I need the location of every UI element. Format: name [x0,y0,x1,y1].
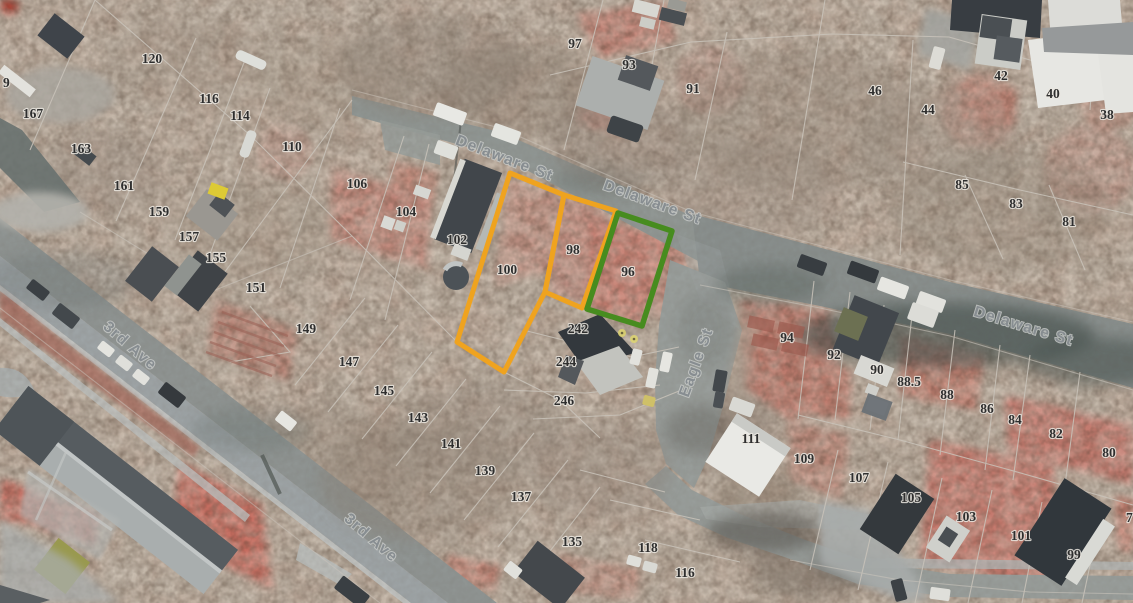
svg-text:244: 244 [556,354,577,369]
svg-text:101: 101 [1011,528,1032,543]
svg-text:98: 98 [566,242,580,257]
svg-text:42: 42 [994,68,1008,83]
svg-text:161: 161 [114,178,135,193]
svg-text:94: 94 [780,330,794,345]
svg-text:82: 82 [1049,426,1063,441]
svg-text:7: 7 [1126,510,1133,525]
svg-text:242: 242 [568,321,589,336]
svg-text:46: 46 [868,83,882,98]
svg-text:137: 137 [511,489,532,504]
svg-text:147: 147 [339,354,360,369]
svg-text:85: 85 [955,177,969,192]
svg-text:106: 106 [347,176,368,191]
svg-text:97: 97 [568,36,582,51]
svg-text:92: 92 [827,347,841,362]
svg-text:38: 38 [1100,107,1114,122]
svg-text:96: 96 [621,264,635,279]
svg-text:80: 80 [1102,445,1116,460]
svg-text:114: 114 [230,108,250,123]
svg-text:149: 149 [296,321,317,336]
svg-text:9: 9 [3,75,10,90]
svg-text:118: 118 [638,540,658,555]
svg-text:143: 143 [408,410,429,425]
svg-text:141: 141 [441,436,462,451]
svg-text:145: 145 [374,383,395,398]
svg-text:120: 120 [142,51,163,66]
svg-text:88.5: 88.5 [897,374,921,389]
svg-text:157: 157 [179,229,200,244]
svg-text:84: 84 [1008,412,1022,427]
svg-text:99: 99 [1067,547,1081,562]
svg-text:151: 151 [246,280,267,295]
svg-text:91: 91 [686,81,700,96]
svg-text:105: 105 [901,490,922,505]
svg-text:88: 88 [940,387,954,402]
svg-text:135: 135 [562,534,583,549]
svg-text:167: 167 [23,106,44,121]
svg-text:102: 102 [447,232,468,247]
svg-text:44: 44 [921,102,935,117]
svg-text:93: 93 [622,57,636,72]
svg-text:83: 83 [1009,196,1023,211]
svg-text:104: 104 [396,204,417,219]
svg-text:103: 103 [956,509,977,524]
svg-text:90: 90 [870,362,884,377]
svg-text:116: 116 [675,565,695,580]
svg-text:111: 111 [742,431,761,446]
svg-text:139: 139 [475,463,496,478]
svg-text:159: 159 [149,204,170,219]
svg-text:40: 40 [1046,86,1060,101]
svg-text:246: 246 [554,393,575,408]
svg-text:81: 81 [1062,214,1076,229]
svg-text:110: 110 [282,139,302,154]
svg-text:109: 109 [794,451,815,466]
svg-text:100: 100 [497,262,518,277]
svg-text:155: 155 [206,250,227,265]
svg-text:116: 116 [199,91,219,106]
svg-text:163: 163 [71,141,92,156]
svg-text:107: 107 [849,470,870,485]
svg-text:86: 86 [980,401,994,416]
